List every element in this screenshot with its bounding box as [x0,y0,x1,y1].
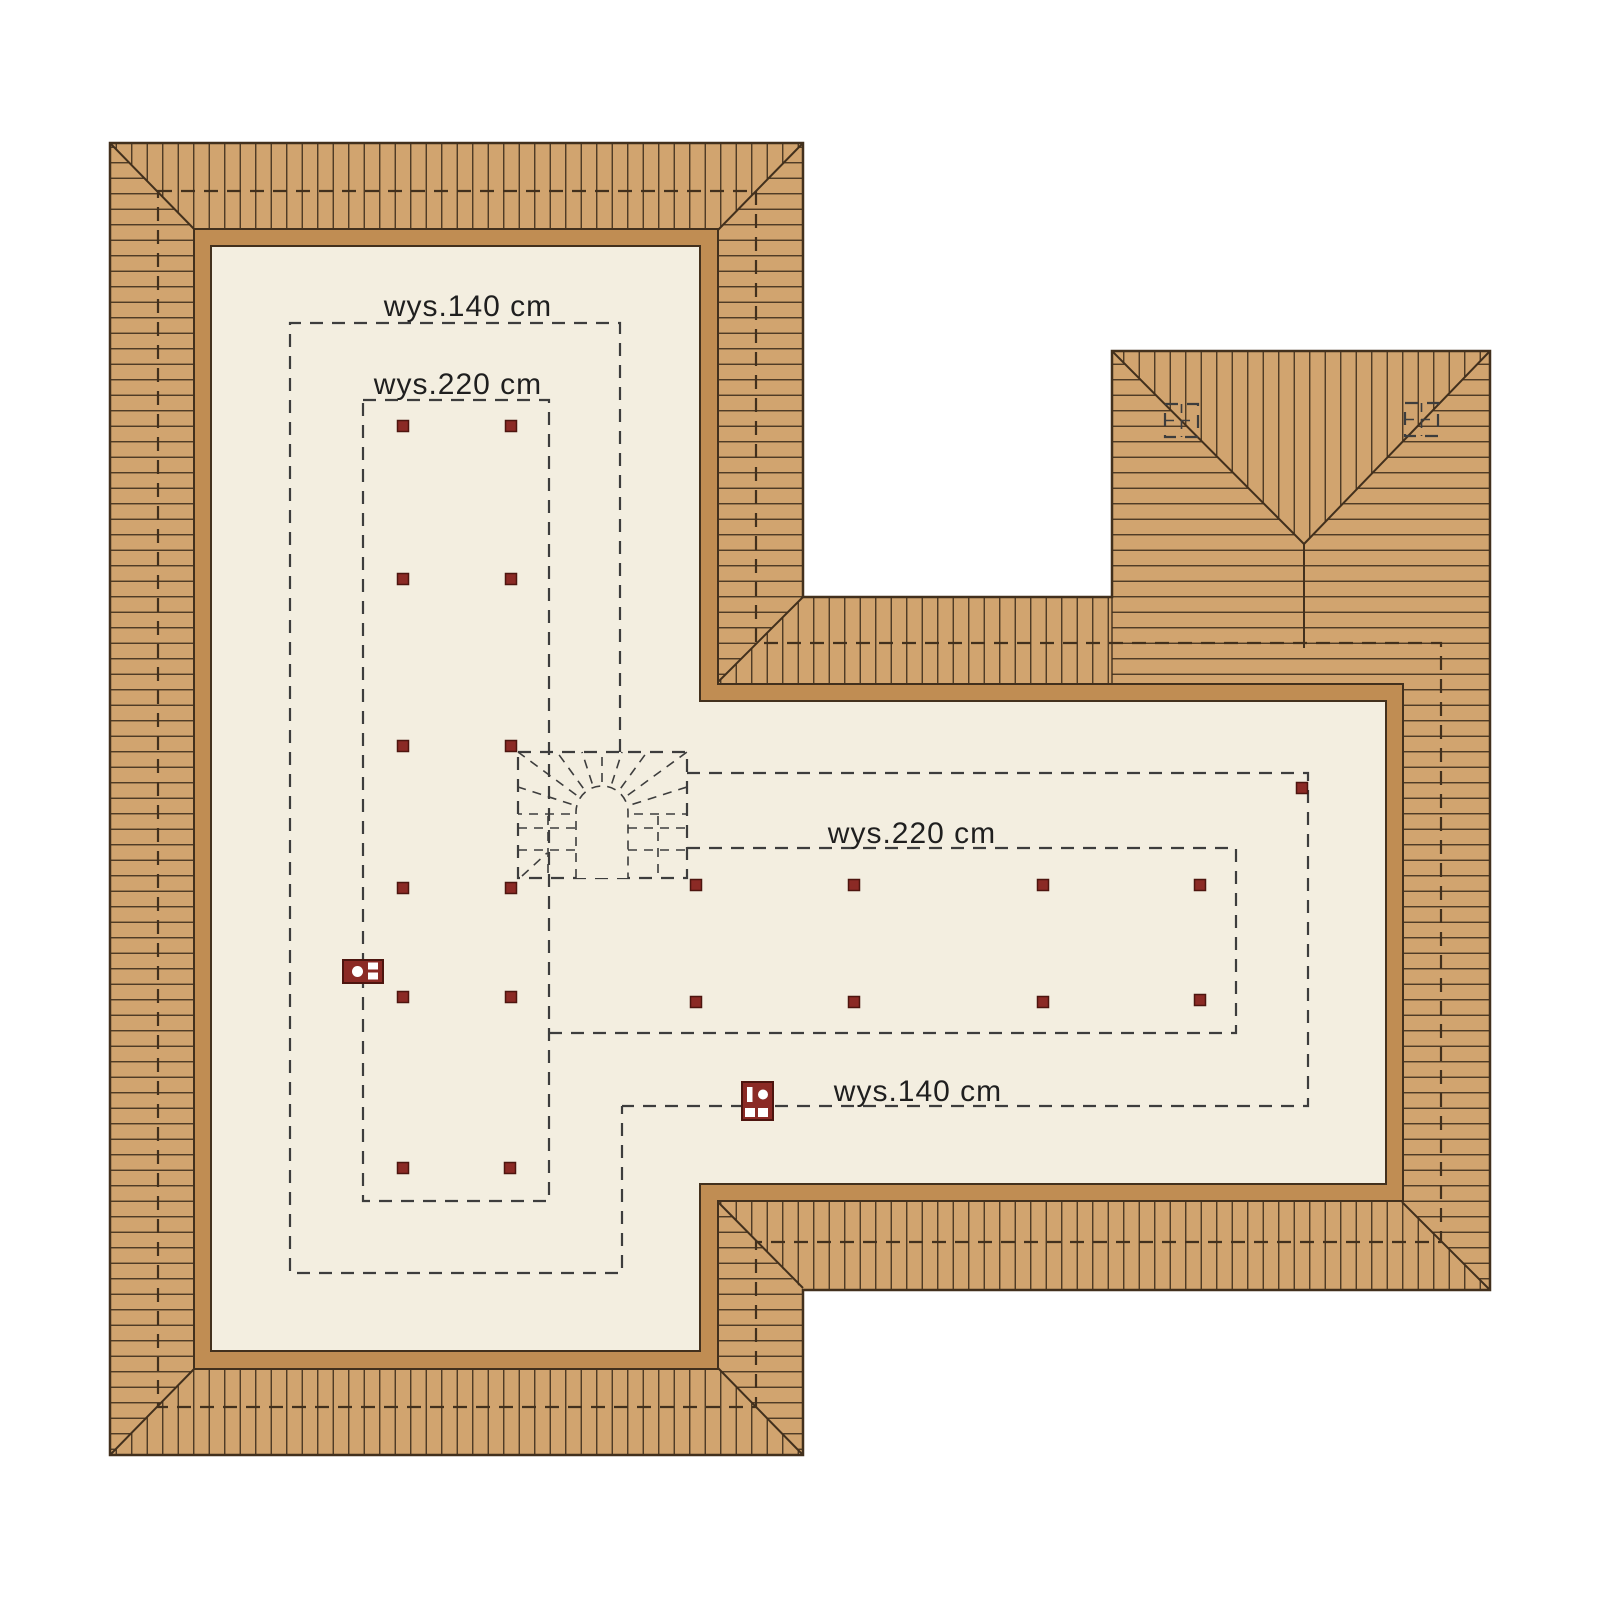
roof-slope-east-upper [718,143,803,682]
post-marker [1038,997,1049,1008]
stair-well-mask [576,786,628,878]
chimney-icon [343,960,383,983]
roof-slope-south [110,1368,803,1455]
post-marker [1297,783,1308,794]
post-marker [1195,995,1206,1006]
post-marker [506,992,517,1003]
chimney-flue-square [368,963,378,970]
height-label-220-left: wys.220 cm [373,368,542,401]
roof-slope-west [110,143,195,1455]
post-marker [506,574,517,585]
post-marker [398,883,409,894]
post-marker [506,421,517,432]
post-marker [691,880,702,891]
post-marker [849,997,860,1008]
chimney-flue-square [758,1108,768,1117]
post-marker [1195,880,1206,891]
height-label-140-left: wys.140 cm [383,290,552,323]
roof-slope-wing-south [718,1202,1490,1290]
post-marker [505,1163,516,1174]
floor-plan-canvas: wys.140 cm wys.220 cm wys.220 cm wys.140… [0,0,1600,1600]
post-marker [398,992,409,1003]
chimney-icon-2 [742,1082,773,1120]
chimney-flue-square [745,1108,755,1117]
post-marker [506,883,517,894]
height-label-220-wing: wys.220 cm [827,817,996,850]
post-marker [506,741,517,752]
chimney-flue-round [758,1090,768,1100]
chimney-flue-square [368,973,378,980]
chimney-flue-slot [747,1087,753,1102]
chimney-flue-round [352,966,363,977]
post-marker [691,997,702,1008]
post-marker [398,574,409,585]
post-marker [398,741,409,752]
roof-slope-north [110,143,803,230]
post-marker [398,421,409,432]
post-marker [849,880,860,891]
height-label-140-wing: wys.140 cm [833,1075,1002,1108]
post-marker [398,1163,409,1174]
floor-plan-page: wys.140 cm wys.220 cm wys.220 cm wys.140… [0,0,1600,1600]
post-marker [1038,880,1049,891]
